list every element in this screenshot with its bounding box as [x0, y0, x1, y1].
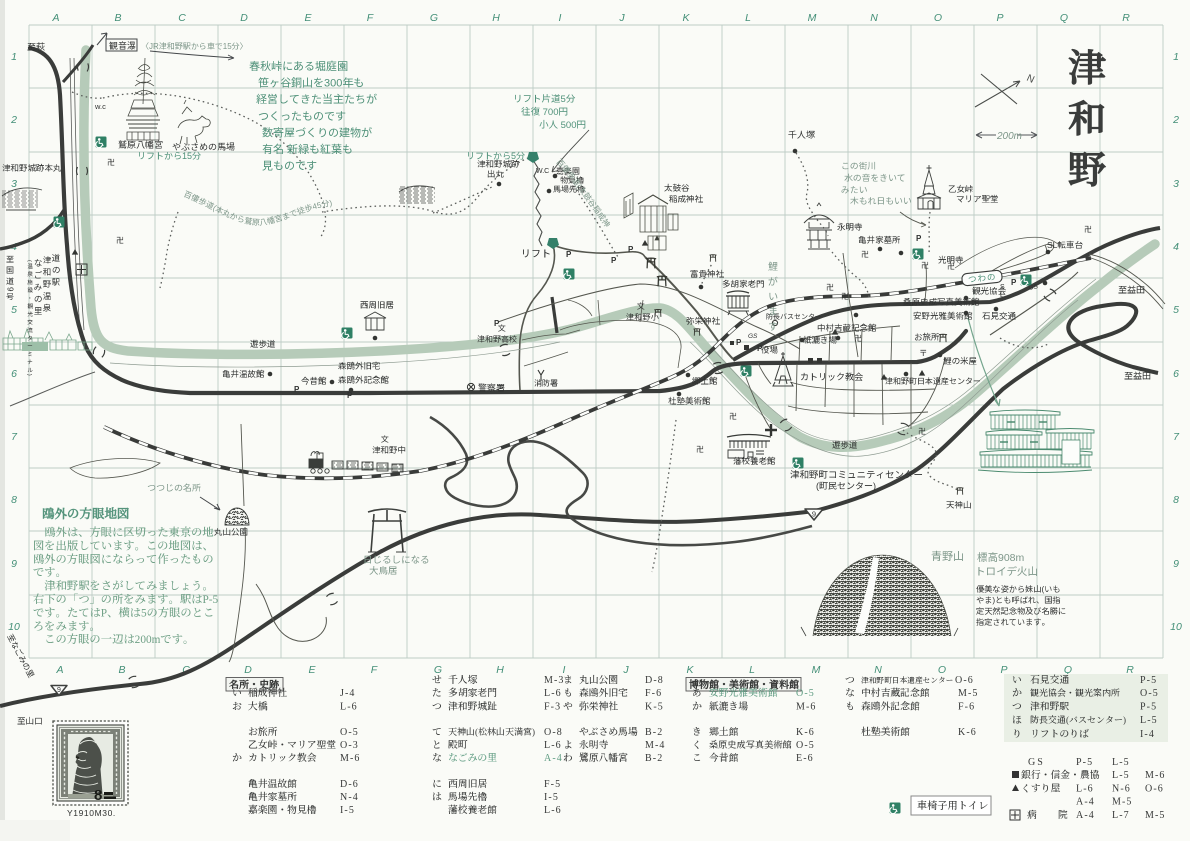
svg-text:な: な: [432, 750, 442, 764]
svg-text:文: 文: [380, 434, 389, 445]
svg-text:中村吉蔵記念館: 中村吉蔵記念館: [817, 322, 877, 334]
svg-text:至萩: 至萩: [27, 40, 46, 53]
svg-text:森鴎外記念館: 森鴎外記念館: [338, 374, 390, 386]
svg-text:B: B: [118, 664, 125, 676]
svg-text:L-6: L-6: [544, 801, 562, 816]
svg-text:ま: ま: [563, 672, 573, 686]
svg-text:L: L: [749, 664, 755, 676]
svg-text:3: 3: [11, 178, 17, 190]
svg-text:く: く: [692, 737, 702, 751]
svg-text:鯉の米屋: 鯉の米屋: [943, 355, 977, 367]
svg-text:I-5: I-5: [340, 801, 355, 816]
svg-text:丸山公園: 丸山公園: [214, 526, 249, 538]
svg-text:永明寺: 永明寺: [836, 221, 863, 233]
svg-text:病: 病: [1027, 807, 1037, 821]
svg-text:藩校養老館: 藩校養老館: [733, 455, 776, 467]
svg-text:よ: よ: [563, 737, 573, 751]
svg-text:P: P: [736, 337, 742, 348]
svg-text:馬場先櫓: 馬場先櫓: [448, 789, 487, 803]
svg-text:リフト: リフト: [521, 245, 551, 260]
svg-text:稲成神社: 稲成神社: [248, 685, 287, 699]
svg-text:P: P: [611, 255, 617, 266]
svg-text:観光協会・観光案内所: 観光協会・観光案内所: [1029, 686, 1120, 699]
svg-text:A: A: [55, 664, 63, 676]
svg-text:嘉楽園・物見櫓: 嘉楽園・物見櫓: [248, 802, 317, 816]
svg-text:D: D: [240, 12, 248, 24]
svg-text:春秋峠にある堀庭園: 春秋峠にある堀庭園: [249, 58, 348, 74]
svg-text:P: P: [1011, 277, 1017, 288]
svg-text:石見交通: 石見交通: [1030, 672, 1070, 686]
svg-text:カトリック教会: カトリック教会: [800, 370, 863, 383]
svg-text:お旅所: お旅所: [248, 724, 278, 738]
svg-text:GS: GS: [1028, 753, 1045, 768]
svg-text:院: 院: [1058, 807, 1068, 821]
svg-text:卍: 卍: [854, 333, 862, 344]
svg-text:L: L: [745, 12, 751, 24]
svg-text:P: P: [566, 249, 572, 260]
svg-text:卍: 卍: [861, 249, 869, 260]
svg-text:F: F: [371, 664, 378, 676]
svg-text:卍: 卍: [947, 261, 955, 272]
svg-text:出丸: 出丸: [487, 168, 505, 180]
svg-text:P: P: [916, 233, 922, 244]
svg-text:桑原史成写真美術館: 桑原史成写真美術館: [903, 296, 980, 308]
svg-text:標高908m: 標高908m: [977, 550, 1025, 565]
svg-text:西周旧居: 西周旧居: [360, 299, 394, 311]
svg-text:8: 8: [1173, 494, 1179, 506]
svg-text:D: D: [244, 664, 252, 676]
svg-text:せ: せ: [432, 672, 442, 686]
svg-text:安野光雅美術館: 安野光雅美術館: [913, 310, 973, 322]
svg-text:J: J: [622, 664, 629, 676]
svg-text:り: り: [1012, 726, 1022, 740]
svg-text:観音瀑: 観音瀑: [108, 39, 136, 52]
svg-text:この方眼の一辺は200mです。: この方眼の一辺は200mです。: [33, 631, 194, 647]
svg-text:A-4: A-4: [1076, 806, 1095, 821]
svg-text:卍: 卍: [826, 282, 834, 293]
svg-text:指定されています。: 指定されています。: [976, 616, 1050, 628]
svg-text:G: G: [430, 12, 438, 24]
svg-text:B-2: B-2: [645, 749, 663, 764]
svg-text:見ものです: 見ものです: [262, 158, 317, 174]
svg-text:こ: こ: [692, 750, 702, 764]
svg-text:(町民センター): (町民センター): [816, 479, 876, 492]
svg-text:弥栄神社: 弥栄神社: [579, 699, 618, 713]
svg-text:M: M: [812, 664, 821, 676]
svg-text:数寄屋づくりの建物が: 数寄屋づくりの建物が: [262, 124, 372, 140]
svg-text:K-6: K-6: [958, 723, 977, 738]
svg-text:亀井家墓所: 亀井家墓所: [247, 789, 297, 803]
svg-text:往復 700円: 往復 700円: [521, 104, 568, 118]
svg-text:P: P: [294, 384, 300, 395]
svg-text:津和野町日本遺産センター: 津和野町日本遺産センター: [885, 376, 981, 387]
svg-text:も: も: [563, 685, 573, 699]
svg-text:津和野城趾: 津和野城趾: [448, 699, 498, 713]
svg-text:郷土館: 郷土館: [692, 375, 718, 387]
svg-text:マリア聖堂: マリア聖堂: [956, 193, 999, 205]
svg-text:木もれ日もいい: 木もれ日もいい: [850, 194, 912, 207]
svg-text:つ: つ: [1012, 699, 1022, 713]
svg-text:つ: つ: [432, 699, 442, 713]
svg-text:卍: 卍: [1084, 224, 1092, 235]
svg-text:か: か: [692, 699, 702, 713]
svg-text:稲成神社: 稲成神社: [668, 193, 704, 205]
svg-text:文: 文: [636, 301, 645, 312]
svg-text:至益田: 至益田: [1118, 283, 1145, 296]
svg-text:P: P: [347, 390, 353, 401]
svg-text:津: 津: [1068, 37, 1107, 92]
svg-text:た: た: [432, 685, 442, 699]
svg-text:L-6: L-6: [340, 698, 358, 713]
svg-text:P: P: [628, 244, 634, 255]
svg-text:2: 2: [10, 114, 17, 126]
svg-text:O-6: O-6: [1145, 780, 1164, 795]
svg-text:千人塚: 千人塚: [448, 672, 478, 686]
svg-text:大橋: 大橋: [248, 699, 269, 713]
svg-text:L-5: L-5: [1140, 711, 1158, 726]
svg-text:森鴎外旧宅: 森鴎外旧宅: [579, 685, 628, 699]
svg-text:笹ヶ谷銅山を300年も: 笹ヶ谷銅山を300年も: [258, 75, 364, 91]
svg-text:9: 9: [812, 509, 816, 520]
svg-text:お: お: [232, 699, 242, 713]
svg-text:E-6: E-6: [796, 749, 814, 764]
svg-text:藩校養老館: 藩校養老館: [448, 802, 497, 816]
svg-text:卍: 卍: [696, 444, 704, 455]
svg-text:P: P: [757, 343, 763, 354]
svg-text:I-4: I-4: [1140, 725, 1155, 740]
svg-text:8: 8: [11, 494, 17, 506]
svg-text:津和野高校: 津和野高校: [477, 334, 517, 345]
svg-text:西周旧居: 西周旧居: [448, 776, 487, 790]
svg-text:鯉がいます: 鯉がいます: [766, 258, 781, 333]
svg-text:〒: 〒: [919, 347, 928, 359]
svg-text:SL転車台: SL転車台: [1047, 239, 1083, 251]
svg-text:警察署: 警察署: [477, 381, 505, 394]
svg-text:5: 5: [11, 304, 17, 316]
svg-text:防長交通(バスセンター): 防長交通(バスセンター): [1030, 713, 1126, 726]
svg-text:卍: 卍: [918, 426, 926, 437]
svg-text:か: か: [232, 750, 242, 764]
svg-text:森鴎外記念館: 森鴎外記念館: [861, 699, 920, 713]
svg-text:なごみの里: なごみの里: [448, 750, 497, 764]
svg-text:安野光雅美術館: 安野光雅美術館: [709, 685, 778, 699]
svg-text:つくったものです: つくったものです: [258, 108, 346, 124]
svg-text:津和野駅: 津和野駅: [1030, 699, 1069, 713]
svg-text:車椅子用トイレ: 車椅子用トイレ: [917, 797, 988, 812]
svg-text:リフトのりば: リフトのりば: [1030, 726, 1090, 740]
svg-text:4: 4: [1173, 241, 1179, 253]
svg-text:経営してきた当主たちが: 経営してきた当主たちが: [256, 91, 377, 107]
svg-text:2: 2: [1172, 114, 1179, 126]
svg-text:森鴎外旧宅: 森鴎外旧宅: [338, 360, 381, 372]
svg-text:卍: 卍: [841, 291, 849, 302]
svg-text:亀井家墓所: 亀井家墓所: [858, 234, 901, 246]
svg-text:O: O: [934, 12, 942, 24]
svg-text:永明寺: 永明寺: [578, 737, 609, 751]
svg-text:石見交通: 石見交通: [982, 310, 1017, 322]
svg-text:6: 6: [1173, 368, 1179, 380]
svg-text:つ: つ: [845, 672, 855, 686]
svg-text:津和野城跡本丸: 津和野城跡本丸: [2, 162, 62, 174]
svg-text:い: い: [1012, 672, 1022, 686]
svg-text:天神山: 天神山: [946, 499, 972, 511]
svg-text:6: 6: [11, 368, 17, 380]
svg-text:き: き: [692, 724, 702, 738]
svg-text:M: M: [808, 12, 817, 24]
svg-text:Q: Q: [1060, 12, 1068, 24]
svg-text:卍: 卍: [107, 157, 115, 168]
svg-text:亀井温故館: 亀井温故館: [222, 368, 265, 380]
svg-text:9: 9: [11, 558, 17, 570]
svg-text:E: E: [308, 664, 316, 676]
svg-text:8: 8: [94, 787, 102, 804]
svg-text:野: 野: [1068, 139, 1106, 194]
svg-text:て: て: [432, 724, 442, 738]
svg-text:か: か: [1012, 685, 1022, 699]
svg-text:10: 10: [1170, 621, 1182, 633]
svg-text:遊歩道: 遊歩道: [832, 439, 858, 451]
svg-text:千人塚: 千人塚: [788, 128, 815, 141]
svg-text:〈JR津和野駅から車で15分〉: 〈JR津和野駅から車で15分〉: [141, 41, 248, 52]
svg-text:亀井温故館: 亀井温故館: [247, 776, 297, 790]
svg-text:A-4: A-4: [544, 749, 563, 764]
svg-text:青野山: 青野山: [931, 548, 964, 564]
svg-text:多胡家老門: 多胡家老門: [448, 685, 497, 699]
svg-text:K-5: K-5: [645, 698, 664, 713]
svg-text:リフト片道5分: リフト片道5分: [513, 91, 576, 105]
svg-text:乙女峠・マリア聖堂: 乙女峠・マリア聖堂: [248, 737, 336, 751]
svg-text:Y1910M30.: Y1910M30.: [67, 807, 116, 819]
svg-text:P: P: [996, 12, 1003, 24]
svg-text:富貴神社: 富貴神社: [690, 268, 725, 280]
svg-text:つつじの名所: つつじの名所: [147, 481, 201, 494]
svg-text:な: な: [845, 685, 855, 699]
svg-text:リフトから5分: リフトから5分: [466, 149, 525, 162]
svg-text:消防署: 消防署: [534, 378, 558, 389]
svg-text:郷土館: 郷土館: [709, 724, 739, 738]
svg-text:C: C: [178, 12, 186, 24]
svg-text:M-6: M-6: [340, 749, 361, 764]
svg-text:鴎外の方眼地図: 鴎外の方眼地図: [42, 504, 130, 522]
svg-text:大鳥居: 大鳥居: [369, 563, 398, 577]
svg-text:弥栄神社: 弥栄神社: [686, 315, 721, 327]
svg-text:P: P: [494, 318, 500, 329]
svg-text:F: F: [367, 12, 374, 24]
svg-text:至国道9号: 至国道9号: [5, 254, 16, 302]
svg-text:津和野小: 津和野小: [625, 311, 660, 323]
svg-text:や: や: [563, 699, 573, 713]
svg-text:と: と: [432, 737, 442, 751]
svg-text:(温泉施設・観光交流ターミナル): (温泉施設・観光交流ターミナル): [26, 260, 34, 376]
svg-text:E: E: [304, 12, 312, 24]
svg-text:カトリック教会: カトリック教会: [248, 750, 317, 764]
svg-text:桑原史成写真美術館: 桑原史成写真美術館: [709, 737, 792, 751]
svg-text:杜塾美術館: 杜塾美術館: [668, 395, 711, 407]
svg-text:卍: 卍: [921, 260, 929, 271]
svg-text:中村吉蔵記念館: 中村吉蔵記念館: [861, 685, 930, 699]
svg-text:殿町: 殿町: [447, 737, 468, 751]
svg-text:L-7: L-7: [1112, 806, 1130, 821]
svg-text:今昔館: 今昔館: [709, 750, 739, 764]
svg-text:K: K: [686, 664, 694, 676]
svg-text:今昔館: 今昔館: [301, 375, 327, 387]
svg-text:トロイデ火山: トロイデ火山: [975, 564, 1038, 579]
svg-text:遊歩道: 遊歩道: [250, 338, 276, 350]
svg-text:和: 和: [1068, 88, 1106, 143]
svg-text:卍: 卍: [116, 235, 124, 246]
svg-text:も: も: [845, 699, 855, 713]
svg-text:役場: 役場: [760, 344, 779, 356]
svg-text:紙漉き場: 紙漉き場: [803, 334, 838, 346]
svg-text:くすり屋: くすり屋: [1021, 781, 1061, 795]
svg-text:H: H: [496, 664, 504, 676]
svg-text:N: N: [870, 12, 878, 24]
svg-text:R: R: [1122, 12, 1130, 24]
svg-text:紙漉き場: 紙漉き場: [709, 699, 748, 713]
svg-text:わ: わ: [563, 750, 573, 764]
svg-text:M-5: M-5: [1145, 806, 1166, 821]
svg-text:H: H: [492, 12, 500, 24]
svg-text:に: に: [432, 776, 442, 790]
svg-text:鷺原八幡宮: 鷺原八幡宮: [579, 750, 628, 764]
svg-text:多胡家老門: 多胡家老門: [722, 278, 765, 290]
svg-text:至山口: 至山口: [17, 715, 43, 727]
svg-text:やぶさめ馬場: やぶさめ馬場: [579, 724, 638, 738]
svg-text:有名 新緑も紅葉も: 有名 新緑も紅葉も: [262, 141, 353, 157]
svg-text:リフトから15分: リフトから15分: [137, 149, 201, 162]
svg-text:ほ: ほ: [1012, 712, 1022, 726]
svg-text:F-6: F-6: [958, 698, 975, 713]
svg-text:W.C: W.C: [536, 166, 549, 176]
svg-text:GS: GS: [748, 330, 758, 340]
svg-text:小人 500円: 小人 500円: [539, 117, 586, 131]
svg-text:A: A: [51, 12, 59, 24]
svg-text:津和野中: 津和野中: [372, 444, 407, 456]
svg-text:至益田: 至益田: [1124, 369, 1151, 382]
svg-text:1: 1: [1173, 51, 1179, 63]
svg-text:お旅所: お旅所: [914, 331, 940, 343]
svg-text:5: 5: [1173, 304, 1179, 316]
svg-text:9: 9: [1173, 558, 1179, 570]
svg-text:は: は: [432, 789, 442, 803]
svg-text:3: 3: [1173, 178, 1179, 190]
svg-text:い: い: [232, 685, 242, 699]
svg-text:卍: 卍: [729, 411, 737, 422]
svg-text:w.c: w.c: [94, 101, 106, 112]
svg-text:1: 1: [11, 51, 17, 63]
svg-text:B: B: [114, 12, 121, 24]
svg-text:あ: あ: [692, 685, 702, 699]
svg-text:M-6: M-6: [796, 698, 817, 713]
svg-text:200m: 200m: [996, 127, 1022, 142]
svg-text:杜塾美術館: 杜塾美術館: [861, 724, 910, 738]
svg-text:L: L: [1000, 290, 1004, 300]
svg-text:P-5: P-5: [1076, 753, 1093, 768]
svg-text:I: I: [559, 12, 562, 24]
svg-text:K: K: [682, 12, 690, 24]
svg-text:9: 9: [57, 685, 61, 695]
svg-text:丸山公園: 丸山公園: [579, 672, 618, 686]
svg-text:J: J: [618, 12, 625, 24]
svg-text:F-3: F-3: [544, 698, 561, 713]
